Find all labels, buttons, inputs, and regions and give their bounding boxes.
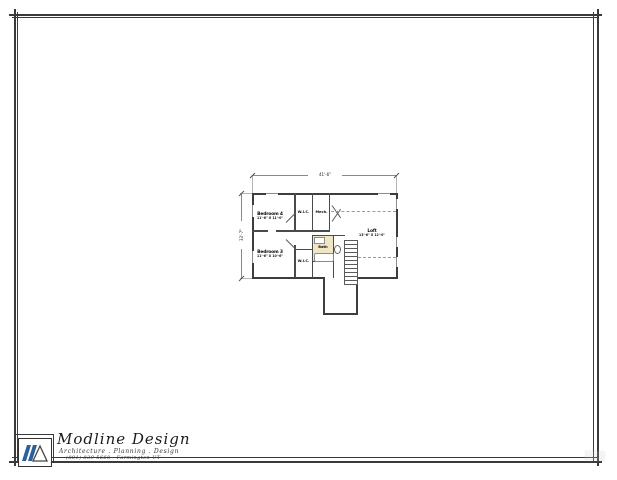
room-label-bedroom4: Bedroom 4 11'-6" X 11'-0" bbox=[246, 212, 294, 221]
room-size: 13'-6" X 12'-0" bbox=[350, 234, 394, 238]
stairwell-wall-bottom bbox=[323, 313, 358, 315]
room-name: W.I.C. bbox=[296, 259, 311, 263]
room-label-bath: Bath bbox=[315, 245, 331, 249]
room-name: W.I.C. bbox=[296, 210, 311, 214]
witness-line-top-left bbox=[252, 176, 253, 193]
room-label-mech: Mech. bbox=[314, 210, 329, 214]
interior-wall bbox=[312, 235, 345, 236]
room-name: Bath bbox=[315, 245, 331, 249]
interior-wall bbox=[294, 249, 313, 250]
window bbox=[395, 257, 399, 267]
border-outer-bottom bbox=[9, 461, 602, 463]
exterior-wall-bottom-right bbox=[356, 277, 398, 279]
window bbox=[378, 192, 390, 196]
window bbox=[395, 199, 399, 209]
witness-line-top-right bbox=[396, 176, 397, 193]
room-size: 11'-6" X 10'-6" bbox=[246, 255, 294, 259]
border-inner-top bbox=[12, 17, 599, 18]
interior-wall bbox=[252, 230, 268, 232]
border-outer-left bbox=[14, 9, 16, 466]
exterior-wall-bottom-left bbox=[252, 277, 325, 279]
border-inner-left bbox=[17, 12, 18, 462]
tub bbox=[314, 253, 334, 262]
interior-wall bbox=[276, 230, 330, 232]
modline-logo bbox=[18, 438, 52, 467]
company-name: Modline Design bbox=[57, 430, 191, 448]
drawing-sheet: { "page": { "background": "#ffffff", "bo… bbox=[0, 0, 617, 480]
company-contact: (801) 839-5668 - Farmington UT bbox=[66, 455, 161, 461]
modline-logo-graphic bbox=[19, 439, 51, 466]
sink-counter bbox=[314, 237, 325, 244]
window bbox=[395, 237, 399, 247]
corner-stamp: ░░░ bbox=[585, 452, 606, 462]
company-tagline: Architecture . Planning . Design bbox=[59, 448, 179, 455]
room-size: 11'-6" X 11'-0" bbox=[246, 217, 294, 221]
room-label-bedroom3: Bedroom 3 11'-6" X 10'-6" bbox=[246, 250, 294, 259]
ceiling-break-line bbox=[331, 211, 396, 212]
dimension-height-label: 33'-7" bbox=[240, 221, 244, 249]
interior-wall bbox=[312, 235, 313, 278]
ceiling-break-line bbox=[358, 257, 396, 258]
title-block-right-line bbox=[53, 434, 54, 462]
stairs bbox=[344, 240, 358, 285]
room-label-wic-bottom: W.I.C. bbox=[296, 259, 311, 263]
border-outer-right bbox=[597, 9, 599, 466]
title-block-top-line bbox=[14, 434, 54, 435]
room-label-wic-top: W.I.C. bbox=[296, 210, 311, 214]
room-name: Mech. bbox=[314, 210, 329, 214]
interior-wall bbox=[312, 193, 313, 230]
border-inner-right bbox=[593, 12, 594, 462]
floor-plan: 41'-6" 33'-7" Bedroom 4 bbox=[230, 163, 415, 323]
stairwell-wall-left bbox=[323, 277, 325, 315]
toilet bbox=[334, 245, 341, 254]
border-outer-top bbox=[9, 14, 602, 16]
dimension-width-label: 41'-6" bbox=[308, 173, 342, 177]
interior-wall bbox=[329, 193, 330, 230]
window bbox=[266, 192, 278, 196]
room-label-loft: Loft 13'-6" X 12'-0" bbox=[350, 229, 394, 238]
